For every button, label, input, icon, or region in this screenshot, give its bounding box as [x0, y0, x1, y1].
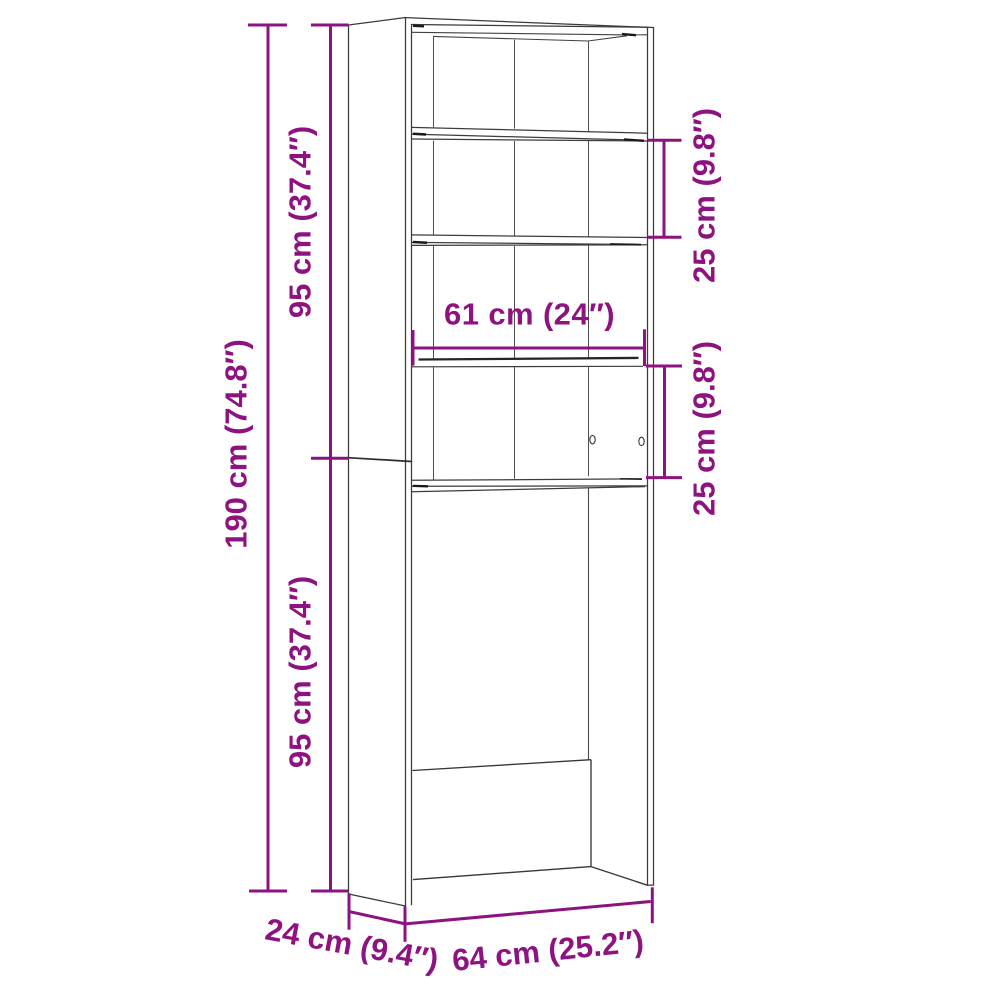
svg-text:190 cm (74.8″): 190 cm (74.8″)	[219, 339, 254, 549]
svg-text:25 cm (9.8″): 25 cm (9.8″)	[687, 108, 722, 283]
svg-text:61 cm (24″): 61 cm (24″)	[444, 297, 615, 332]
svg-text:95 cm (37.4″): 95 cm (37.4″)	[283, 126, 318, 318]
svg-text:95 cm (37.4″): 95 cm (37.4″)	[283, 576, 318, 768]
svg-text:25 cm (9.8″): 25 cm (9.8″)	[687, 341, 722, 516]
